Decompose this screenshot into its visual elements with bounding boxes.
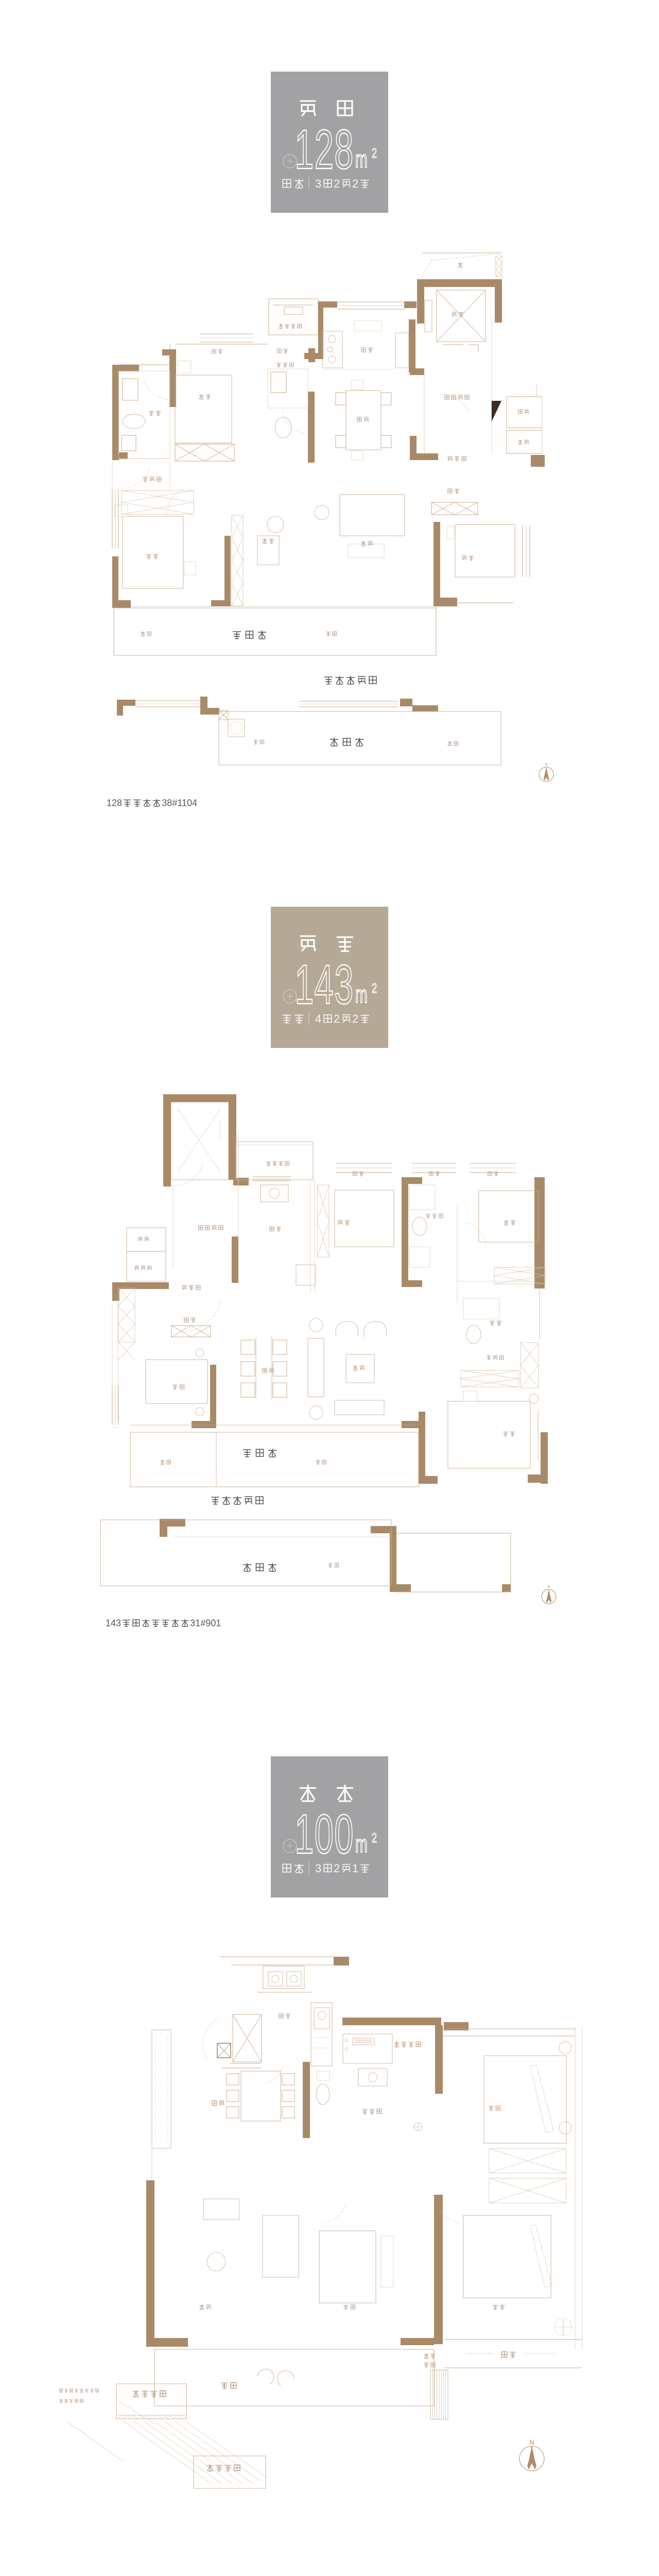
svg-text:4: 4 <box>315 1012 321 1025</box>
svg-text:2: 2 <box>334 1862 340 1875</box>
svg-text:2: 2 <box>372 1831 377 1845</box>
svg-text:3: 3 <box>315 1862 321 1875</box>
svg-text:m: m <box>355 146 368 173</box>
svg-text:2: 2 <box>334 177 340 190</box>
svg-text:143: 143 <box>106 1618 121 1629</box>
svg-text:2: 2 <box>372 146 377 161</box>
svg-text:2: 2 <box>352 177 358 190</box>
svg-text:m: m <box>355 981 368 1008</box>
svg-text:128: 128 <box>107 798 122 808</box>
svg-text:1: 1 <box>352 1862 358 1875</box>
svg-text:N: N <box>545 763 547 767</box>
svg-text:2: 2 <box>372 981 377 996</box>
svg-text:2: 2 <box>352 1012 358 1025</box>
svg-text:31#901: 31#901 <box>190 1618 221 1629</box>
svg-text:m: m <box>355 1831 368 1858</box>
svg-text:100: 100 <box>294 1804 354 1866</box>
svg-text:38#1104: 38#1104 <box>162 798 197 808</box>
svg-text:128: 128 <box>294 119 354 181</box>
svg-text:143: 143 <box>294 954 354 1016</box>
svg-text:N: N <box>529 2438 534 2446</box>
svg-text:2: 2 <box>334 1012 340 1025</box>
svg-text:N: N <box>547 1585 550 1589</box>
svg-text:3: 3 <box>315 177 321 190</box>
